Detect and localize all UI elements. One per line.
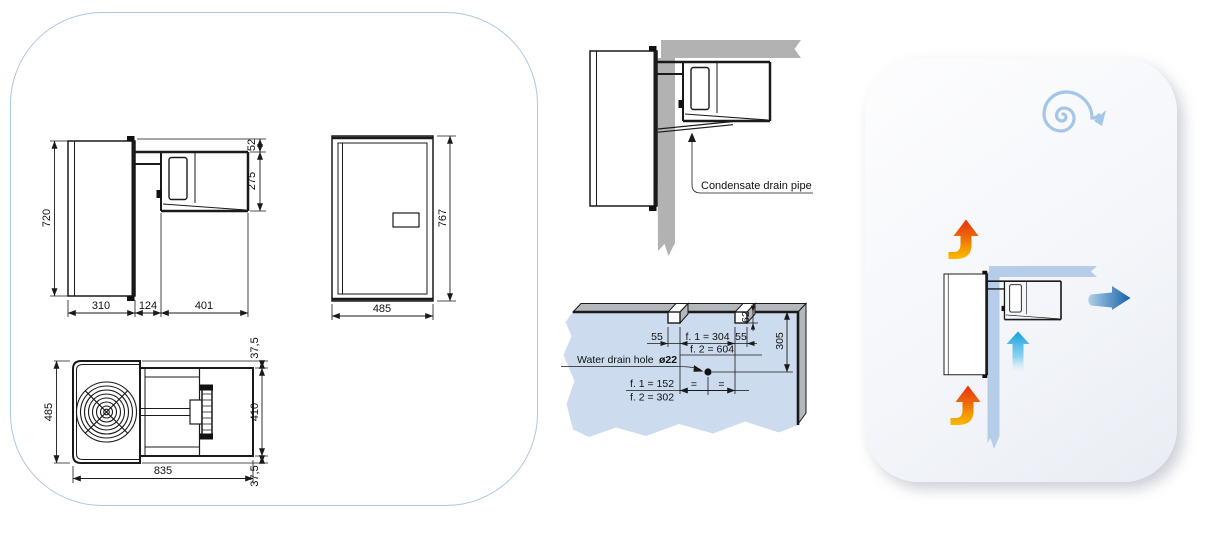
side-dim-condensing-height: 275 — [246, 172, 258, 190]
water-drain-hole-dot — [704, 368, 711, 375]
airflow-diagram — [944, 92, 1131, 449]
cutout-dim-f2-center: f. 2 = 302 — [630, 392, 674, 404]
extension-lines — [50, 141, 70, 296]
water-drain-label: Water drain hole — [577, 354, 654, 366]
wall-mount-view: Condensate drain pipe — [590, 40, 813, 256]
unit-side-drawing — [68, 136, 248, 301]
top-view: 485 835 37,5 410 37,5 — [43, 337, 268, 486]
wall-band-vertical — [657, 58, 675, 256]
side-dim-height: 720 — [41, 209, 53, 227]
equal-mark-right: = — [718, 379, 724, 391]
top-dim-length: 835 — [154, 465, 172, 477]
cutout-dim-f1-width: f. 1 = 304 — [685, 331, 729, 343]
cutout-dim-f1-center: f. 1 = 152 — [630, 378, 674, 390]
cutout-dim-notch-depth: 62 — [740, 311, 752, 323]
wall-band-horizontal — [661, 40, 801, 58]
wall-front-face — [564, 312, 799, 437]
technical-drawing-canvas: 720 310 124 401 52 275 485 7 — [0, 0, 1214, 549]
unit-side-drawing — [944, 271, 1061, 378]
top-dim-margin-bottom: 37,5 — [249, 465, 261, 486]
page: AIR FLOW — [0, 0, 1214, 549]
front-view: 485 767 — [332, 136, 456, 320]
front-dim-width: 485 — [373, 303, 391, 315]
water-drain-diameter: ø22 — [659, 354, 677, 366]
front-dim-height: 767 — [437, 209, 449, 227]
arrow-up-icon — [688, 133, 696, 143]
side-dim-depth: 310 — [92, 300, 110, 312]
hot-air-arrow-bottom — [951, 386, 981, 426]
rating-plate — [393, 213, 419, 227]
top-dim-body: 410 — [249, 403, 261, 421]
wall-band-horizontal — [989, 266, 1097, 277]
cutout-dim-notch-left: 55 — [651, 331, 663, 343]
warm-air-outflow-arrow — [1088, 286, 1130, 310]
condensate-label: Condensate drain pipe — [701, 180, 812, 192]
wall-band-vertical — [988, 272, 1000, 449]
wall-cutout-view: 55 f. 1 = 304 55 f. 2 = 604 62 305 Water… — [561, 303, 806, 437]
equal-mark-left: = — [691, 379, 697, 391]
cutout-dim-hole-depth: 305 — [774, 332, 786, 350]
top-dim-margin-top: 37,5 — [249, 337, 261, 358]
side-dim-condensing-depth: 401 — [195, 300, 213, 312]
top-dim-width: 485 — [43, 403, 55, 421]
cutout-dim-f2-width: f. 2 = 604 — [690, 344, 734, 356]
side-dim-top-offset: 52 — [246, 139, 258, 151]
hot-air-arrow-top — [949, 220, 979, 260]
side-dim-gap: 124 — [139, 300, 157, 312]
spiral-airflow-icon — [1044, 92, 1106, 131]
side-view: 720 310 124 401 52 275 — [41, 136, 266, 317]
cutout-dim-notch-right: 55 — [735, 331, 747, 343]
cold-air-intake-arrow — [1007, 332, 1030, 372]
